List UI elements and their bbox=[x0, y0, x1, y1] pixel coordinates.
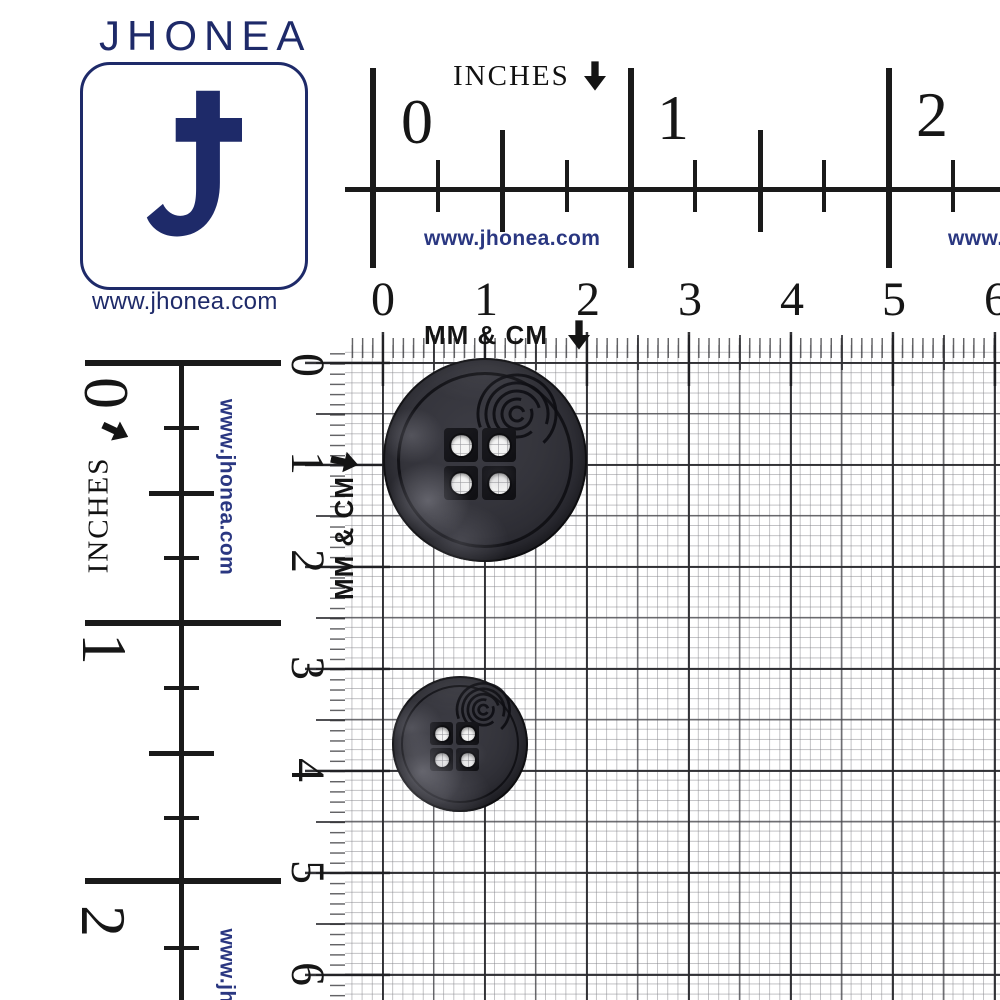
quarter-inch-tick bbox=[951, 160, 955, 212]
inches-label-vertical: INCHES bbox=[85, 457, 114, 574]
quarter-inch-tick bbox=[164, 686, 199, 690]
inch-tick-1 bbox=[85, 620, 281, 626]
inch-number-0: 0 bbox=[74, 377, 138, 409]
inches-label: INCHES bbox=[453, 62, 570, 91]
cm-number-5: 5 bbox=[283, 860, 331, 884]
inch-tick-0 bbox=[370, 68, 376, 268]
mm-cm-label-vertical: MM & CM bbox=[331, 476, 357, 600]
right-arrow-icon bbox=[98, 416, 132, 447]
cm-number-4: 4 bbox=[780, 276, 804, 324]
watermark-url-vertical: www.jhonea.com bbox=[217, 399, 238, 575]
watermark-url-clipped: www.j bbox=[948, 228, 1000, 249]
cm-number-5: 5 bbox=[882, 276, 906, 324]
half-inch-tick bbox=[500, 130, 505, 232]
brand-logo-frame bbox=[80, 62, 308, 290]
half-inch-tick bbox=[149, 751, 214, 756]
scuff-texture bbox=[383, 358, 587, 562]
inch-tick-1 bbox=[628, 68, 634, 268]
brand-website-caption: www.jhonea.com bbox=[92, 290, 278, 314]
inch-tick-0 bbox=[85, 360, 281, 366]
scuff-texture bbox=[392, 676, 528, 812]
inch-number-2: 2 bbox=[71, 905, 135, 937]
quarter-inch-tick bbox=[436, 160, 440, 212]
button-large-20mm bbox=[383, 358, 587, 562]
quarter-inch-tick bbox=[693, 160, 697, 212]
watermark-url: www.jhonea.com bbox=[424, 228, 600, 249]
cm-number-2: 2 bbox=[283, 549, 331, 573]
inch-number-1: 1 bbox=[657, 86, 689, 150]
quarter-inch-tick bbox=[822, 160, 826, 212]
cm-number-3: 3 bbox=[678, 276, 702, 324]
cm-number-6: 6 bbox=[283, 962, 331, 986]
j-cross-monogram-icon bbox=[106, 81, 276, 257]
inch-ruler-baseline-vertical bbox=[179, 361, 184, 1000]
quarter-inch-tick bbox=[164, 946, 199, 950]
cm-number-4: 4 bbox=[283, 758, 331, 782]
inch-tick-2 bbox=[85, 878, 281, 884]
quarter-inch-tick bbox=[565, 160, 569, 212]
cm-number-6: 6 bbox=[984, 276, 1000, 324]
down-arrow-icon bbox=[584, 61, 606, 91]
cm-number-0: 0 bbox=[371, 276, 395, 324]
inch-number-0: 0 bbox=[401, 90, 433, 154]
half-inch-tick bbox=[149, 491, 214, 496]
quarter-inch-tick bbox=[164, 816, 199, 820]
brand-wordmark: JHONEA bbox=[99, 15, 311, 57]
inch-ruler-baseline bbox=[345, 187, 1000, 192]
cm-number-1: 1 bbox=[474, 276, 498, 324]
quarter-inch-tick bbox=[164, 556, 199, 560]
cm-number-0: 0 bbox=[283, 353, 331, 377]
half-inch-tick bbox=[758, 130, 763, 232]
inch-number-1: 1 bbox=[72, 633, 136, 665]
inch-number-2: 2 bbox=[916, 83, 948, 147]
down-arrow-icon bbox=[568, 320, 590, 350]
cm-number-3: 3 bbox=[283, 656, 331, 680]
watermark-url-vertical-clipped: www.jh bbox=[217, 928, 238, 1000]
cm-number-2: 2 bbox=[576, 276, 600, 324]
quarter-inch-tick bbox=[164, 426, 199, 430]
mm-cm-label: MM & CM bbox=[424, 322, 548, 348]
button-small-13mm bbox=[392, 676, 528, 812]
cm-number-1: 1 bbox=[283, 451, 331, 475]
product-measurement-image: JHONEA www.jhonea.com 0 1 2 INCHES www.j… bbox=[0, 0, 1000, 1000]
inch-tick-2 bbox=[886, 68, 892, 268]
